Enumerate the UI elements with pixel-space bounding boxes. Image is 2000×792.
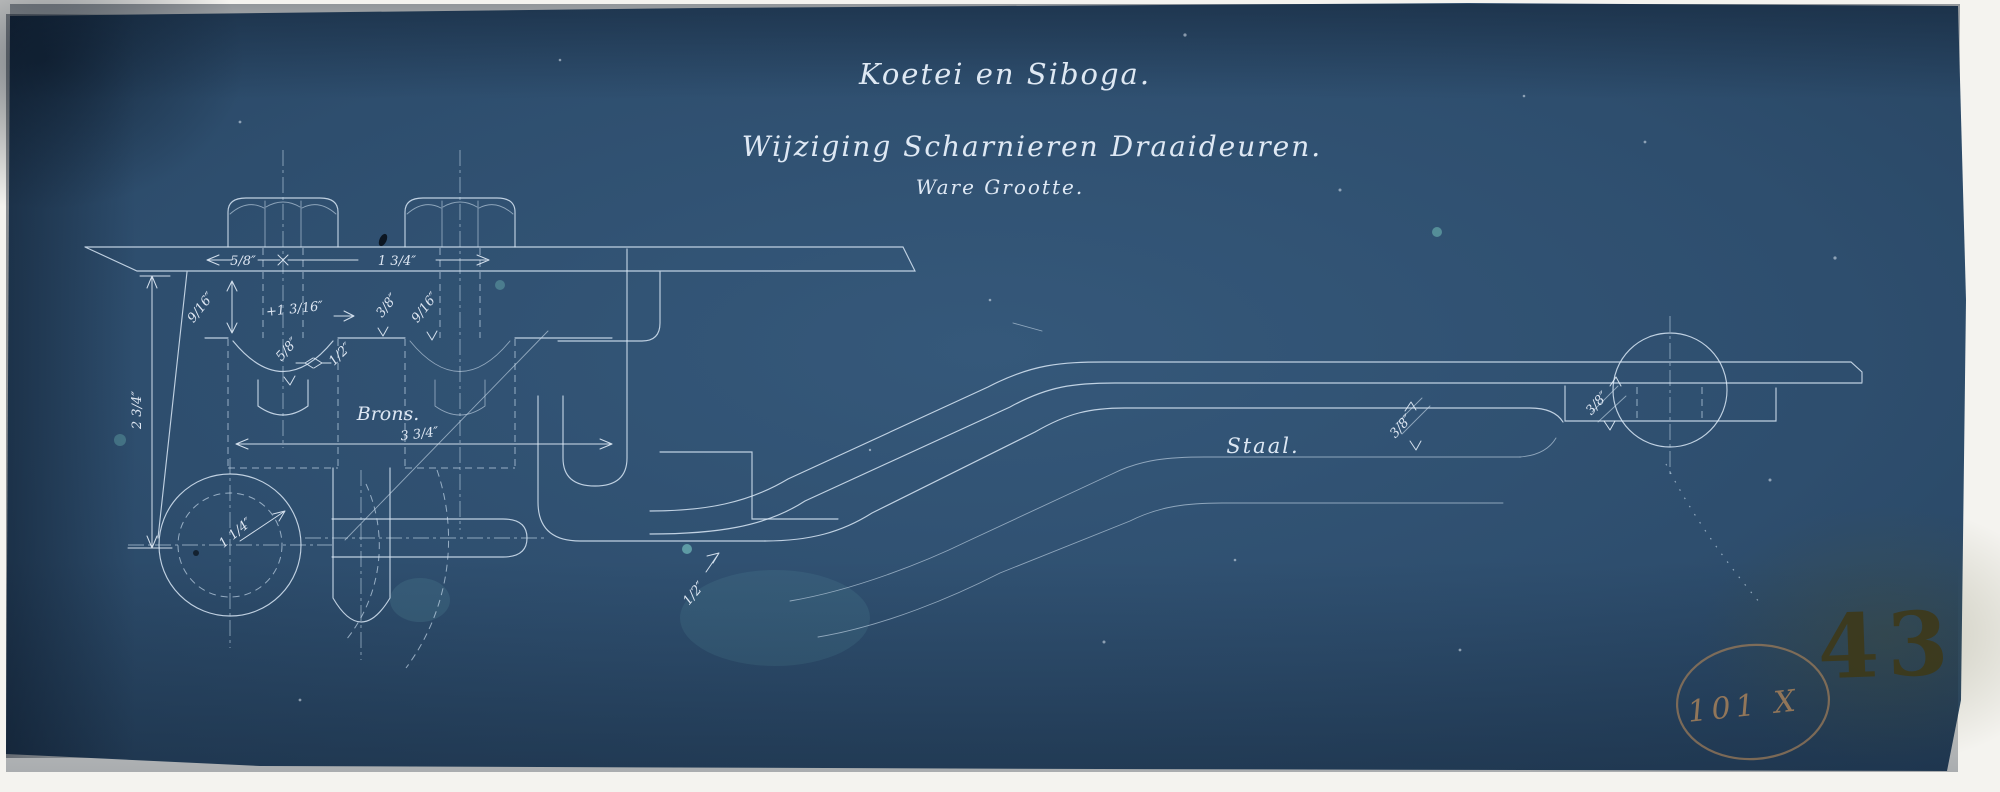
dim-bolt-spacing: 1 3/4″ bbox=[378, 254, 416, 269]
dim-bracket-height: 2 3/4″ bbox=[130, 391, 145, 430]
blueprint-scan: Koetei en Siboga. Wijziging Scharnieren … bbox=[0, 0, 2000, 792]
material-label-steel: Staal. bbox=[1226, 434, 1299, 458]
material-label-bronze: Brons. bbox=[356, 403, 420, 425]
title-subject: Wijziging Scharnieren Draaideuren. bbox=[742, 130, 1322, 163]
title-scale-note: Ware Grootte. bbox=[916, 175, 1084, 199]
archive-number-stamp: 43 bbox=[1816, 591, 1958, 700]
dim-plate-edge-to-bolt: 5/8″ bbox=[230, 254, 256, 269]
blueprint-drawing: Koetei en Siboga. Wijziging Scharnieren … bbox=[0, 0, 2000, 792]
title-ship-names: Koetei en Siboga. bbox=[858, 57, 1151, 91]
